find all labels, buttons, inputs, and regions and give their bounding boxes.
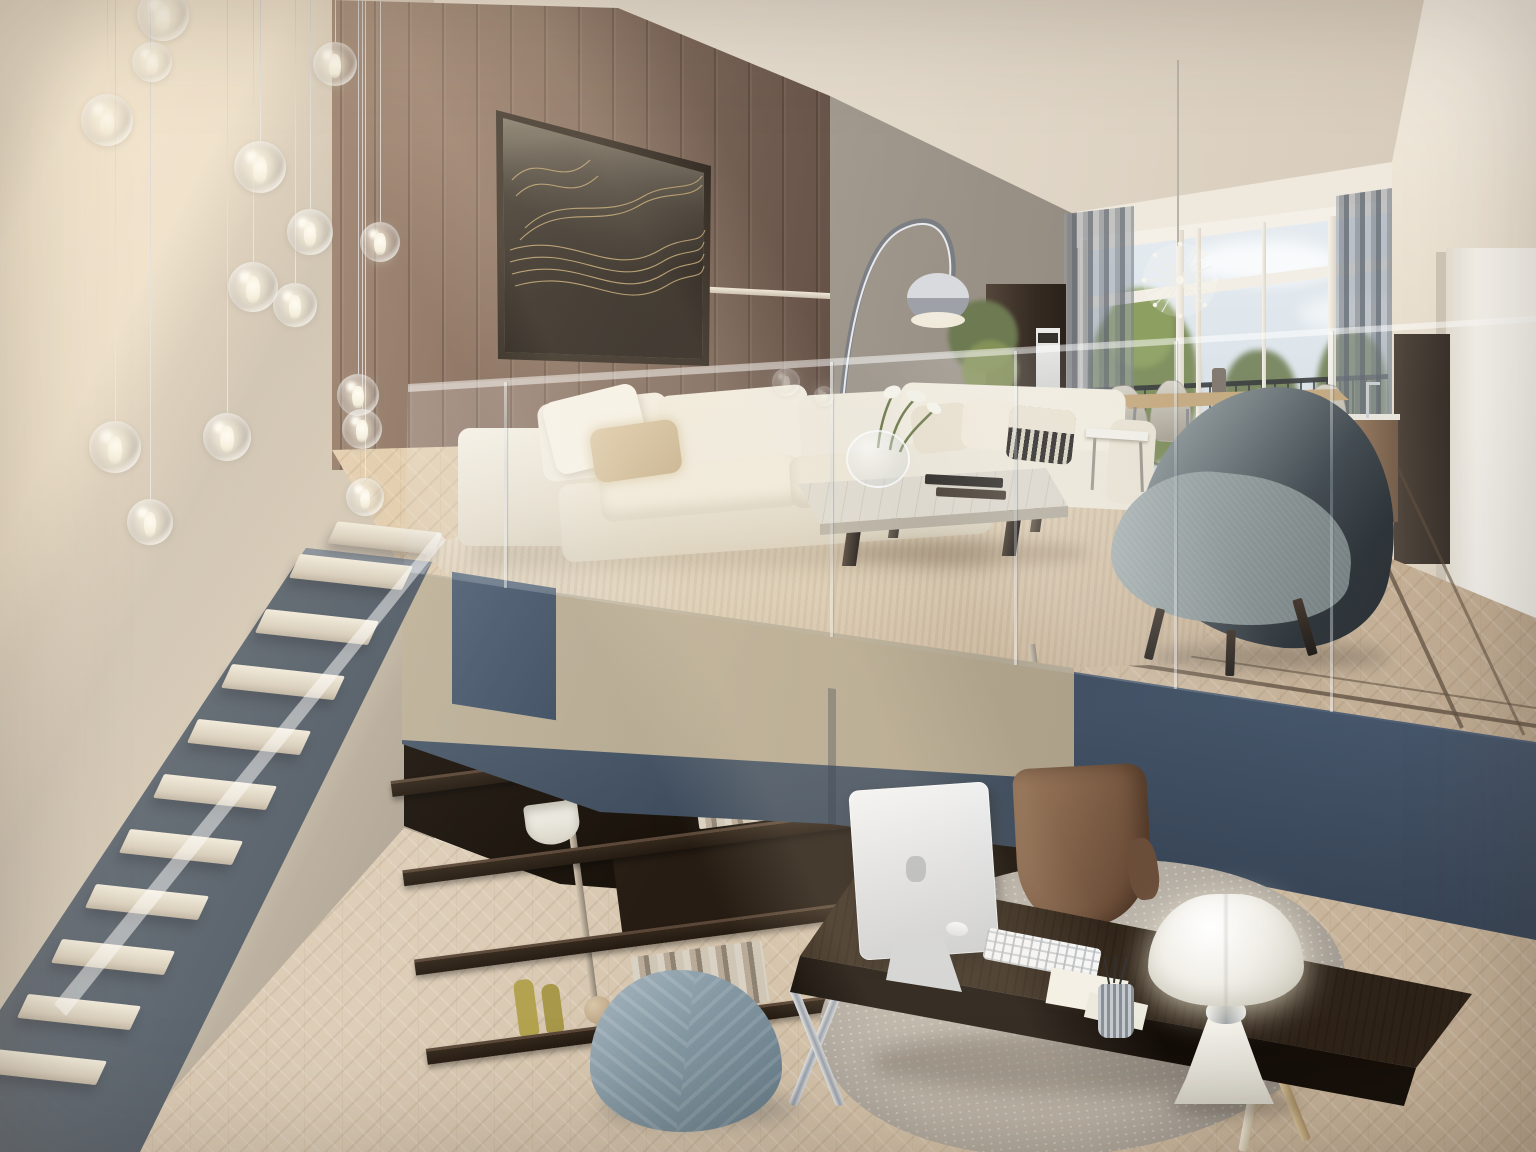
glass-reflection-bubble (772, 368, 800, 396)
pendant-bubble (81, 94, 133, 146)
pendant-bubble (313, 42, 357, 86)
pendant-cable (115, 0, 116, 421)
glass-seam (504, 382, 507, 588)
bulb-core (352, 386, 364, 409)
pendant-bubble (203, 413, 251, 461)
pendant-cable (310, 0, 311, 209)
glass-reflection-bubble (814, 386, 834, 406)
yellow-bottle (540, 983, 564, 1033)
pendant-cable (335, 0, 336, 42)
bulb-core (782, 376, 790, 391)
bulb-core (329, 54, 341, 78)
bulb-core (246, 276, 260, 303)
bulb-core (253, 156, 268, 184)
bulb-core (356, 420, 367, 442)
bulb-core (821, 392, 827, 403)
bulb-core (108, 436, 123, 464)
bulb-core (100, 109, 115, 137)
bulb-core (374, 233, 385, 255)
pendant-cable (362, 0, 363, 409)
bulb-core (220, 426, 233, 452)
pendant-cable (227, 0, 228, 413)
pendant-bubble (89, 421, 141, 473)
pendant-cable (107, 0, 108, 94)
pen-cup (1098, 984, 1134, 1038)
pendant-bubble (132, 42, 172, 82)
pendant-bubble (273, 283, 317, 327)
bulb-core (146, 53, 157, 75)
pendant-bubble (287, 209, 333, 255)
pendant-cable (358, 0, 359, 374)
pendant-bubble (234, 141, 286, 193)
bulb-core (304, 222, 317, 247)
pendant-bubble (342, 409, 382, 449)
fascia-glass-reflection (452, 572, 556, 720)
loft-interior-scene (0, 0, 1536, 1152)
pendant-cable (380, 0, 381, 222)
bulb-core (289, 295, 301, 319)
pendant-bubble (228, 262, 278, 312)
pendant-bubble (346, 478, 384, 516)
pendant-cable (253, 0, 254, 262)
monitor-stand-hole (906, 856, 926, 882)
glass-seam (1174, 341, 1177, 689)
yellow-bottle (513, 978, 540, 1036)
pendant-bubble (127, 499, 173, 545)
bulb-core (360, 489, 371, 510)
pendant-bubble (360, 222, 400, 262)
pendant-cable (260, 0, 261, 141)
bulb-core (156, 4, 171, 32)
bulb-core (144, 512, 157, 537)
glass-seam (1330, 331, 1333, 712)
glass-seam (1014, 351, 1017, 665)
